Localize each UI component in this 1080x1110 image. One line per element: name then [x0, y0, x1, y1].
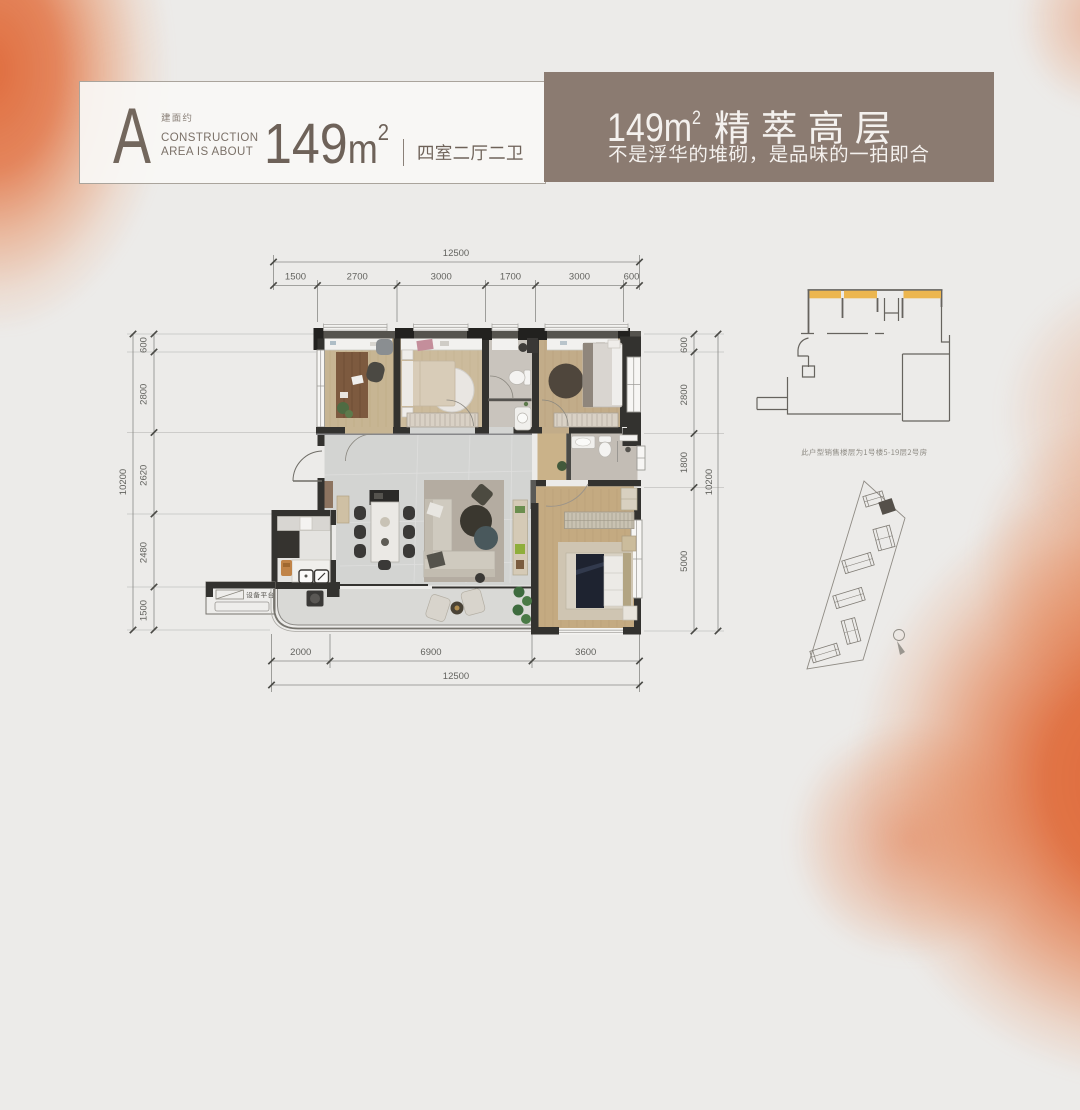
svg-text:10200: 10200: [118, 469, 129, 495]
svg-text:2000: 2000: [290, 647, 311, 658]
svg-text:600: 600: [624, 272, 640, 283]
svg-text:12500: 12500: [443, 671, 469, 682]
svg-text:3000: 3000: [431, 272, 452, 283]
svg-text:1800: 1800: [679, 452, 690, 473]
svg-text:5000: 5000: [679, 551, 690, 572]
svg-text:3000: 3000: [569, 272, 590, 283]
svg-text:2800: 2800: [139, 384, 150, 405]
svg-text:1500: 1500: [139, 600, 150, 621]
svg-text:2480: 2480: [139, 542, 150, 563]
svg-text:6900: 6900: [420, 647, 441, 658]
svg-text:600: 600: [139, 337, 150, 353]
svg-text:2800: 2800: [679, 384, 690, 405]
svg-text:1500: 1500: [285, 272, 306, 283]
svg-text:600: 600: [679, 337, 690, 353]
svg-text:12500: 12500: [443, 248, 469, 259]
svg-text:10200: 10200: [704, 469, 715, 495]
svg-text:2620: 2620: [139, 465, 150, 486]
svg-text:1700: 1700: [500, 272, 521, 283]
svg-text:2700: 2700: [347, 272, 368, 283]
svg-text:3600: 3600: [575, 647, 596, 658]
